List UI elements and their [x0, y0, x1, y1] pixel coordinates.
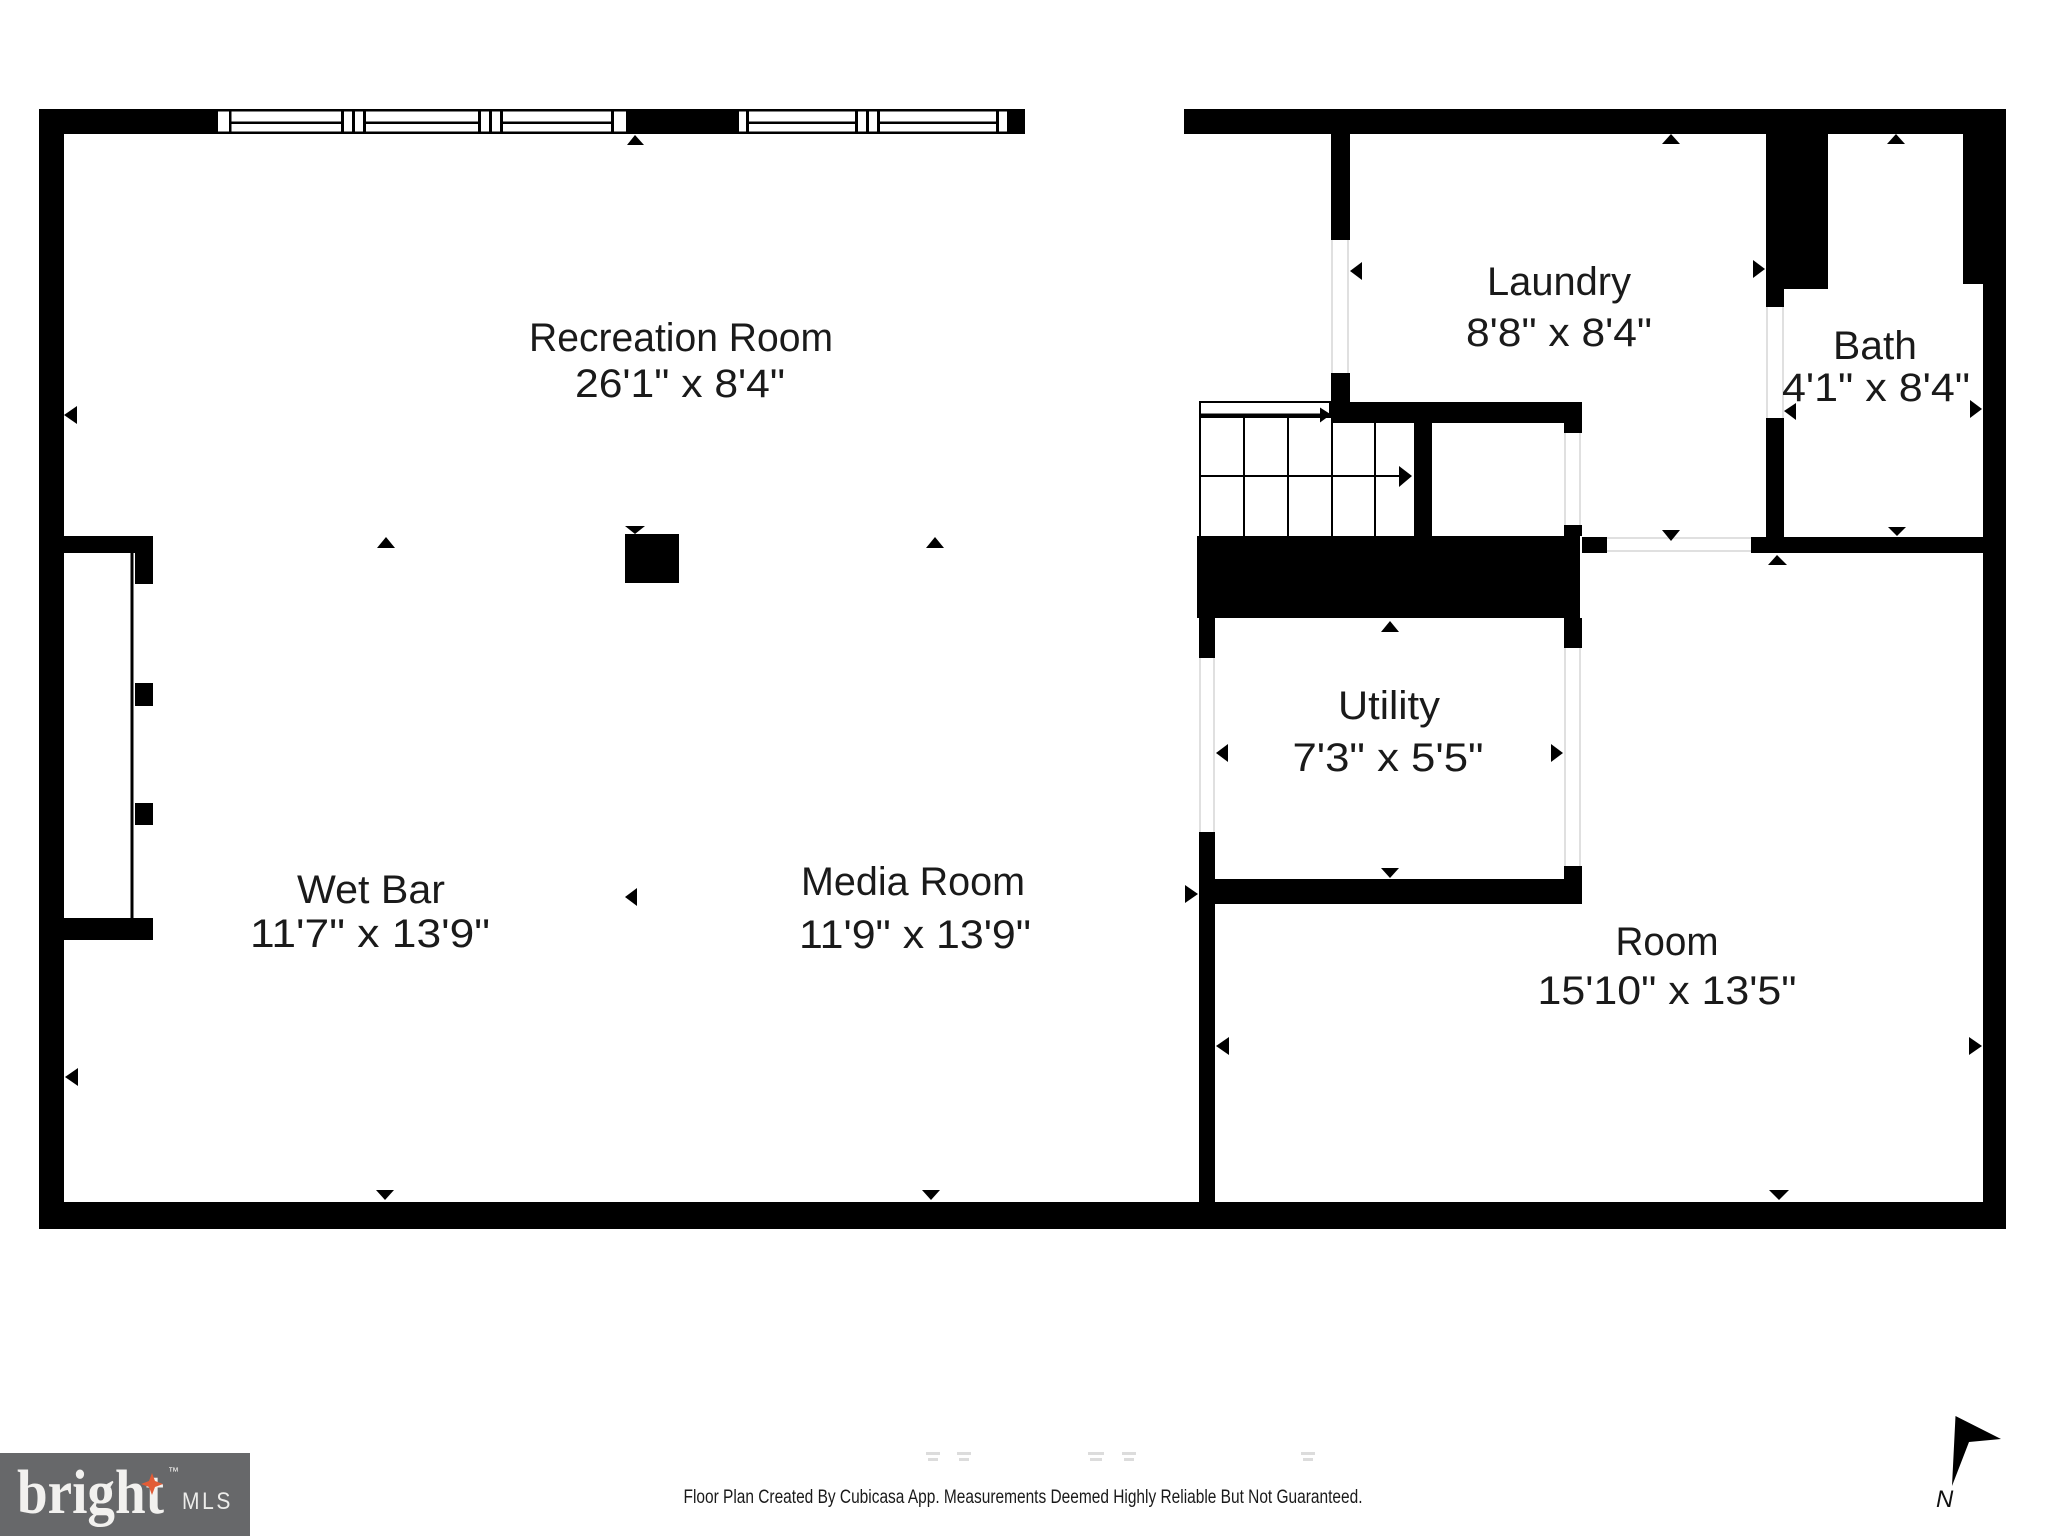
svg-text:Bath: Bath — [1833, 324, 1917, 368]
svg-text:8'8" x 8'4": 8'8" x 8'4" — [1466, 311, 1652, 355]
svg-text:11'7" x 13'9": 11'7" x 13'9" — [250, 912, 490, 956]
svg-text:26'1" x 8'4": 26'1" x 8'4" — [575, 362, 785, 406]
svg-text:N: N — [1936, 1486, 1954, 1513]
svg-text:Laundry: Laundry — [1487, 260, 1631, 304]
svg-text:Floor Plan Created By Cubicasa: Floor Plan Created By Cubicasa App. Meas… — [684, 1487, 1363, 1508]
svg-text:Media Room: Media Room — [801, 860, 1025, 904]
svg-text:Utility: Utility — [1338, 684, 1440, 728]
svg-text:Wet Bar: Wet Bar — [297, 868, 445, 912]
svg-text:bright: bright — [17, 1459, 164, 1527]
svg-text:4'1" x 8'4": 4'1" x 8'4" — [1782, 366, 1970, 410]
svg-text:7'3" x 5'5": 7'3" x 5'5" — [1293, 736, 1484, 780]
svg-text:™: ™ — [168, 1466, 179, 1478]
svg-text:15'10" x 13'5": 15'10" x 13'5" — [1538, 969, 1797, 1013]
svg-text:11'9" x 13'9": 11'9" x 13'9" — [799, 913, 1031, 957]
svg-text:MLS: MLS — [182, 1488, 233, 1515]
svg-text:Recreation Room: Recreation Room — [529, 316, 833, 360]
svg-text:Room: Room — [1616, 920, 1719, 964]
